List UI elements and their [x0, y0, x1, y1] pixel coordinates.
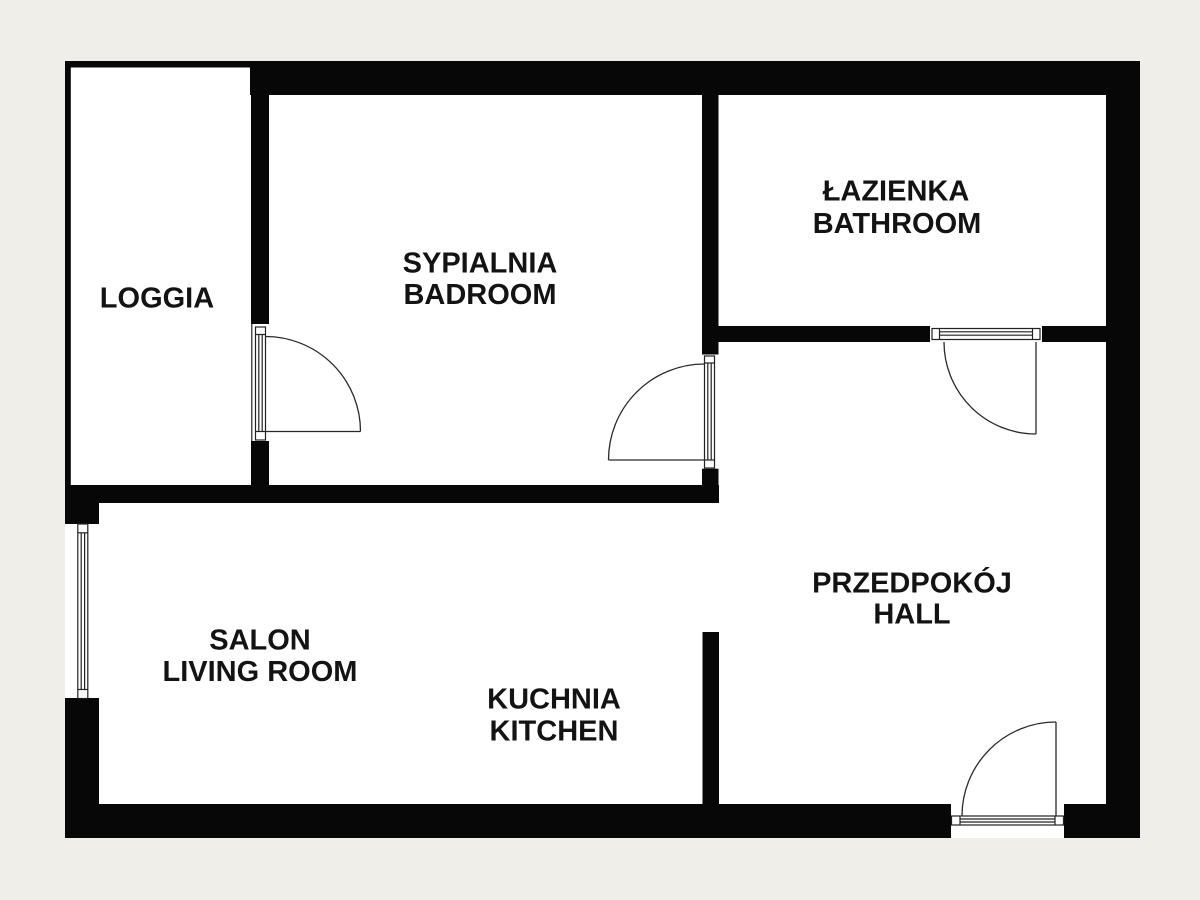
- svg-text:HALL: HALL: [873, 599, 950, 631]
- svg-text:SALON: SALON: [209, 625, 311, 657]
- svg-text:PRZEDPOKÓJ: PRZEDPOKÓJ: [812, 566, 1012, 600]
- svg-text:ŁAZIENKA: ŁAZIENKA: [823, 176, 970, 208]
- svg-text:LIVING ROOM: LIVING ROOM: [163, 656, 358, 688]
- svg-text:SYPIALNIA: SYPIALNIA: [403, 248, 558, 280]
- svg-text:LOGGIA: LOGGIA: [100, 283, 214, 315]
- svg-text:BATHROOM: BATHROOM: [813, 208, 982, 240]
- svg-text:BADROOM: BADROOM: [403, 279, 556, 311]
- svg-text:KUCHNIA: KUCHNIA: [487, 684, 621, 716]
- svg-text:KITCHEN: KITCHEN: [490, 716, 619, 748]
